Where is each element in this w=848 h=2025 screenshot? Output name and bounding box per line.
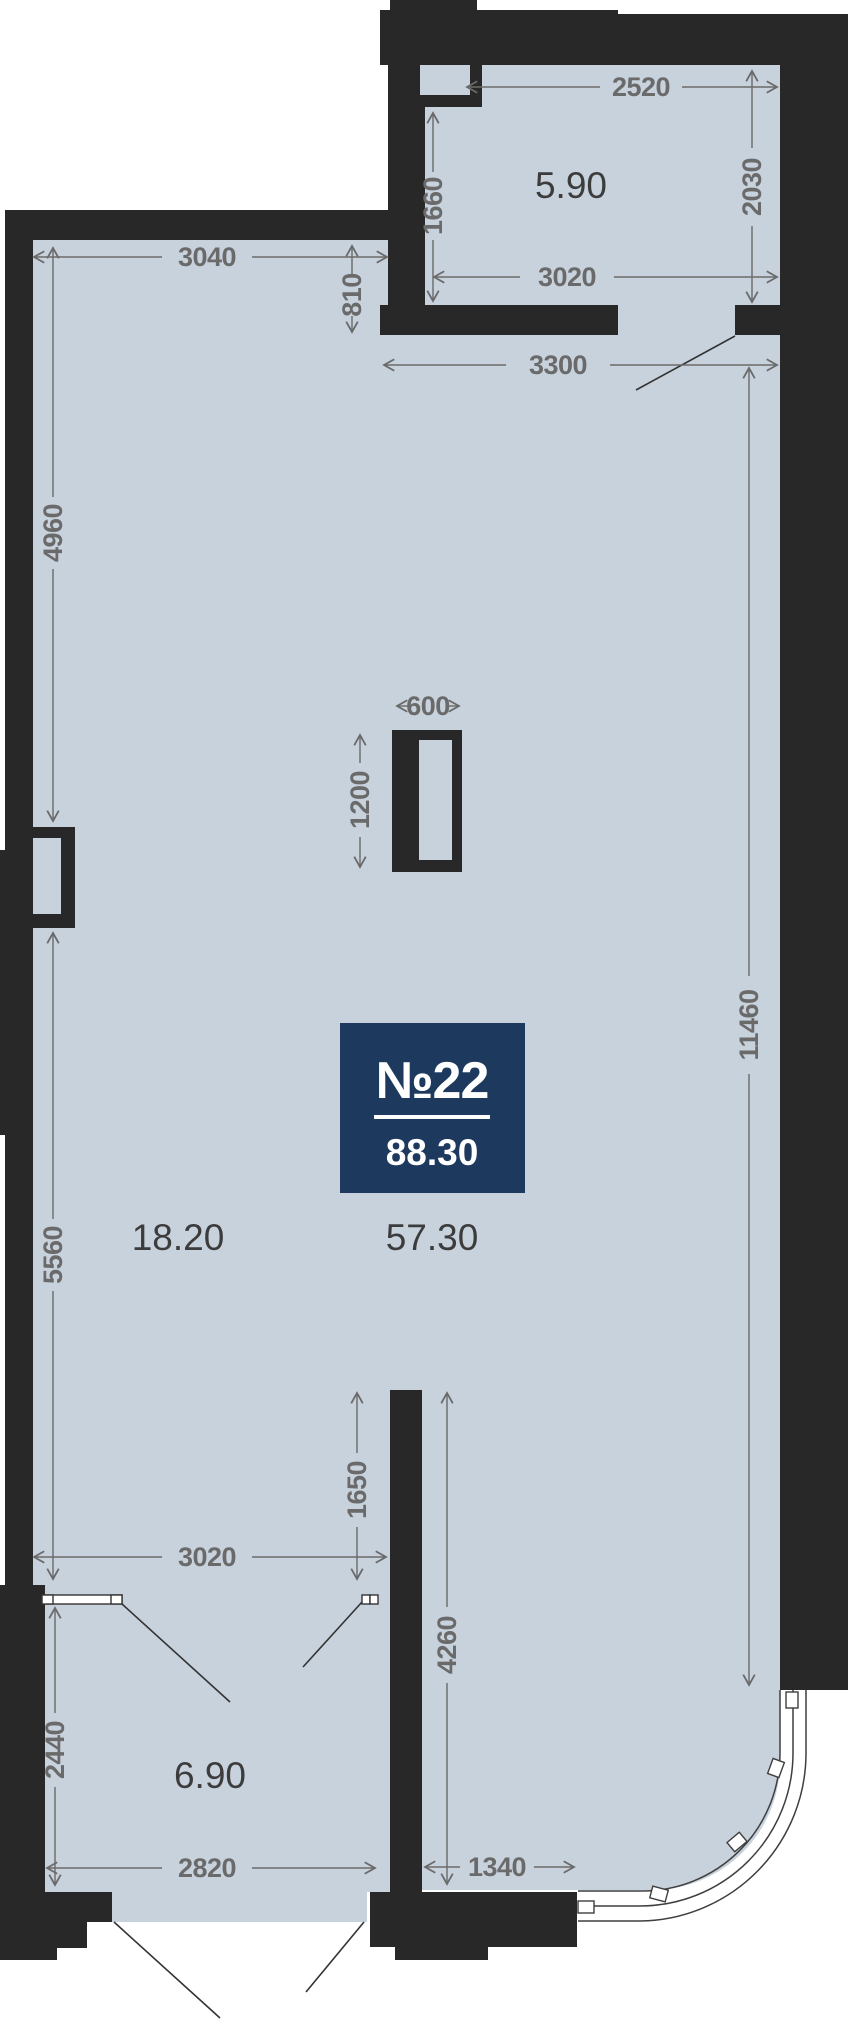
wall-bottom-strip	[0, 1892, 112, 1922]
door-hinge	[362, 1595, 370, 1604]
door-leaf-bottom-room	[42, 1595, 122, 1604]
dim-shaft-height: 1200	[345, 771, 375, 829]
door-swing-exit-left	[114, 1922, 220, 2018]
dim-bottom-opening: 3020	[178, 1542, 236, 1572]
wall-top-room-bottom-l	[380, 305, 618, 335]
wall-main-top	[7, 210, 390, 240]
door-swing-exit-right	[306, 1922, 364, 1992]
dim-top-height: 2030	[737, 158, 767, 216]
unit-badge: №22 88.30	[340, 1023, 525, 1193]
dim-bottom-room-width: 2820	[178, 1853, 236, 1883]
door-hinge	[370, 1595, 378, 1604]
dim-partition-upper: 1650	[342, 1461, 372, 1519]
dim-shaft-width: 600	[406, 691, 450, 721]
dim-left-lower-height: 5560	[38, 1226, 68, 1284]
door-hinge	[42, 1595, 53, 1604]
dim-bottom-left-height: 2440	[40, 1721, 70, 1779]
dim-opening-width: 3300	[529, 350, 587, 380]
unit-number: №22	[376, 1052, 489, 1110]
area-label-room-bottom: 6.90	[174, 1755, 246, 1796]
shaft-inner	[419, 740, 452, 860]
door-hinge	[111, 1595, 122, 1604]
floorplan-drawing: 2520 2030 1660 3020 3040 810 3300 4960 6…	[0, 0, 848, 2025]
dim-top-left-height: 1660	[418, 177, 448, 235]
floor-door-threshold-top	[618, 305, 735, 335]
dim-top-width: 2520	[612, 72, 670, 102]
dim-bottom-right-width: 1340	[468, 1852, 526, 1882]
dim-partition-height: 4260	[432, 1616, 462, 1674]
floor-main-left	[33, 240, 390, 1585]
wall-bottom-step1	[0, 1922, 87, 1948]
wall-bottom-right-step	[395, 1947, 488, 1960]
niche-top-room	[420, 65, 470, 95]
wall-bottom-right	[370, 1892, 577, 1947]
glazing-mullion	[578, 1901, 594, 1913]
dim-right-height: 11460	[734, 989, 764, 1060]
dim-left-upper-height: 4960	[38, 504, 68, 562]
wall-top-room-bottom-r	[735, 305, 780, 335]
dim-top-offset: 810	[337, 273, 367, 317]
unit-total-area: 88.30	[386, 1132, 479, 1173]
wall-left-bottom	[0, 1585, 45, 1892]
wall-partition	[390, 1390, 422, 1892]
floor-room-bottom	[45, 1585, 390, 1892]
area-label-room-top: 5.90	[535, 165, 607, 206]
area-label-room-left: 18.20	[132, 1217, 225, 1258]
dim-top-room-width: 3020	[538, 262, 596, 292]
niche-left-inner	[33, 838, 61, 914]
floor-exit-threshold	[112, 1892, 367, 1922]
dim-main-top-width: 3040	[178, 242, 236, 272]
glazing-mullion	[786, 1692, 798, 1708]
area-label-room-main: 57.30	[386, 1217, 479, 1258]
wall-left-pilaster	[0, 850, 20, 1135]
floorplan-page: 2520 2030 1660 3020 3040 810 3300 4960 6…	[0, 0, 848, 2025]
wall-right	[780, 15, 848, 1690]
wall-bottom-step2	[0, 1948, 57, 1960]
